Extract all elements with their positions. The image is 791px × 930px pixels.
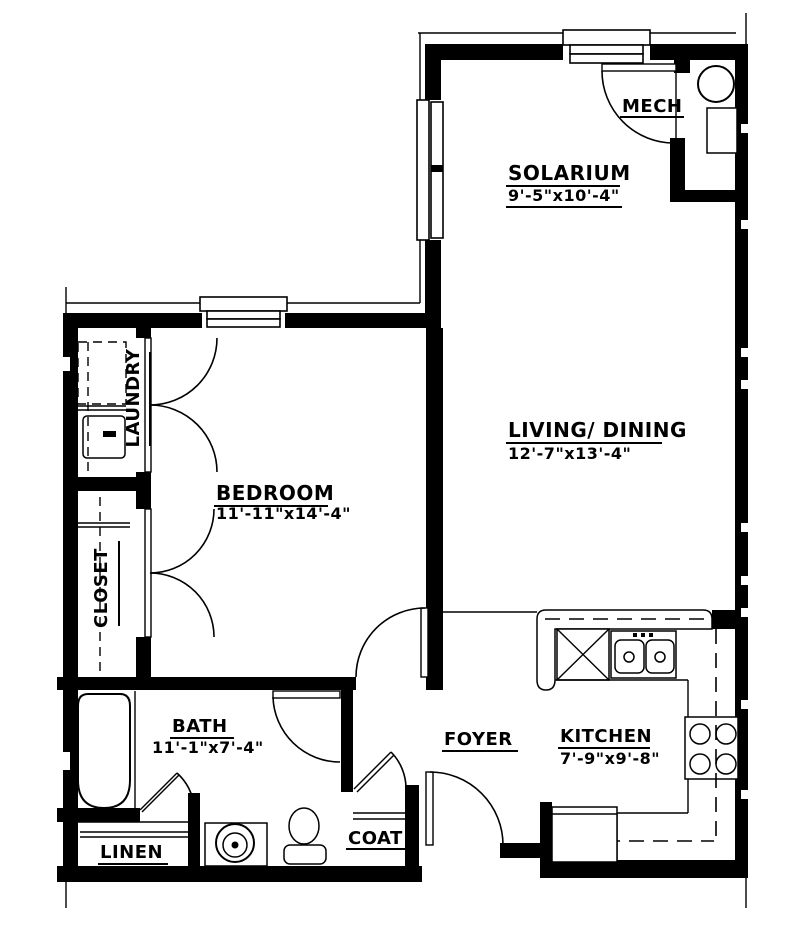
bathtub [78, 694, 130, 808]
room-name: FOYER [444, 729, 513, 750]
room-dims: 9'-5"x10'-4" [508, 186, 620, 205]
room-name: KITCHEN [560, 726, 652, 747]
room-name: MECH [622, 96, 682, 117]
window-bedroom-north [200, 297, 287, 327]
room-name: BEDROOM [216, 481, 334, 505]
room-name: BATH [172, 716, 228, 737]
room-label-linen: LINEN [98, 842, 168, 864]
room-label-kitchen: KITCHEN 7'-9"x9'-8" [558, 726, 660, 768]
room-dims: 11'-11"x14'-4" [216, 504, 351, 523]
room-label-foyer: FOYER [442, 729, 518, 751]
room-name: CLOSET [91, 548, 112, 628]
room-dims: 7'-9"x9'-8" [560, 749, 660, 768]
room-dims: 11'-1"x7'-4" [152, 738, 264, 757]
floor-plan-drawing: SOLARIUM 9'-5"x10'-4" MECH LIVING/ DININ… [0, 0, 791, 930]
room-label-mech: MECH [620, 96, 684, 117]
window-solarium-north [563, 30, 650, 63]
room-label-solarium: SOLARIUM 9'-5"x10'-4" [506, 161, 631, 207]
room-name: COAT [348, 828, 403, 849]
room-name: SOLARIUM [508, 161, 631, 185]
toilet-tank [284, 845, 326, 864]
refrigerator [552, 807, 617, 862]
water-heater [698, 66, 734, 102]
kitchen-sink [611, 631, 676, 678]
range [685, 717, 738, 779]
room-name: LIVING/ DINING [508, 418, 687, 442]
room-label-coat: COAT [346, 828, 412, 849]
floor-plan-canvas: SOLARIUM 9'-5"x10'-4" MECH LIVING/ DININ… [0, 0, 791, 930]
furnace [707, 108, 737, 153]
room-name: LINEN [100, 842, 163, 863]
toilet-bowl [289, 808, 319, 844]
room-name: LAUNDRY [123, 348, 144, 447]
room-label-bedroom: BEDROOM 11'-11"x14'-4" [214, 481, 351, 523]
room-dims: 12'-7"x13'-4" [508, 444, 631, 463]
